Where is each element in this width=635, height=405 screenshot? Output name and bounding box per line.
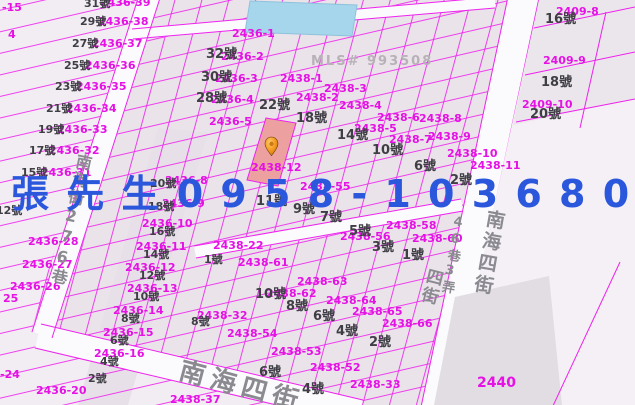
cadastral-map[interactable]: 2436-392436-382436-372436-362436-352436-… <box>0 0 635 405</box>
building-footprint <box>245 1 357 36</box>
watermark-phone: 張 先 生 0 9 5 8 - 1 0 3 6 8 0 <box>11 163 631 218</box>
watermark-mls: MLS# 993508 <box>311 54 433 69</box>
